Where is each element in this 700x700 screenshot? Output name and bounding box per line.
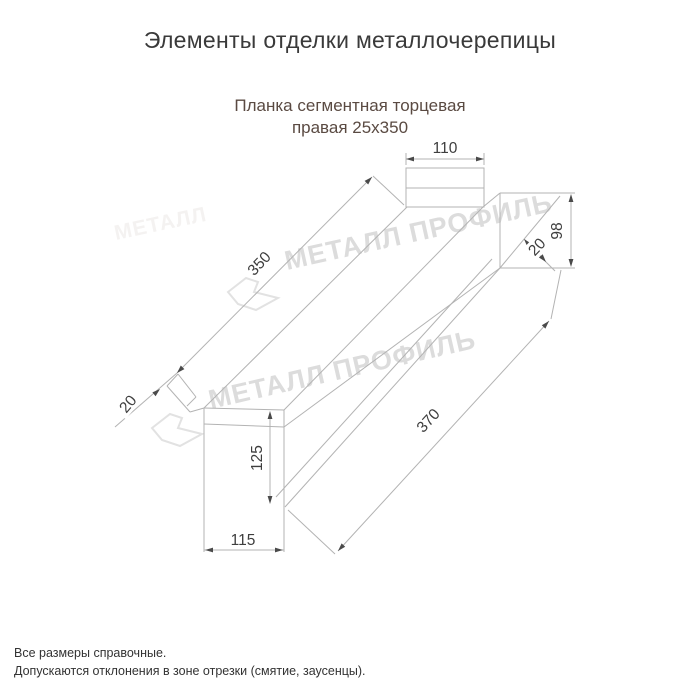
watermark-text: МЕТАЛЛ ПРОФИЛЬ	[282, 187, 555, 275]
metall-profil-logo-icon	[228, 278, 278, 310]
dim-110-group: 110	[406, 140, 484, 165]
dimension-label-350: 350	[245, 248, 275, 279]
technical-drawing: МЕТАЛЛ МЕТАЛЛ ПРОФИЛЬ МЕТАЛЛ ПРОФИЛЬ	[0, 0, 700, 700]
dim-370-group: 370	[288, 270, 561, 554]
watermark-upper: МЕТАЛЛ ПРОФИЛЬ	[228, 187, 555, 310]
page: Элементы отделки металлочерепицы Планка …	[0, 0, 700, 700]
dim-115-group: 115	[204, 532, 284, 552]
dimension-label-370: 370	[414, 405, 444, 436]
dim-125-group: 125	[249, 411, 272, 504]
dimension-label-125: 125	[249, 445, 266, 471]
dim-20-left-group: 20	[113, 373, 177, 427]
dimension-label-98: 98	[549, 222, 566, 239]
metall-profil-logo-icon	[152, 414, 202, 446]
footer-notes: Все размеры справочные. Допускаются откл…	[14, 644, 366, 680]
watermark-faint-text: МЕТАЛЛ	[112, 203, 209, 245]
footer-note-line1: Все размеры справочные.	[14, 644, 366, 662]
dimension-label-110: 110	[433, 140, 458, 157]
footer-note-line2: Допускаются отклонения в зоне отрезки (с…	[14, 662, 366, 680]
watermark-faint: МЕТАЛЛ	[112, 203, 209, 245]
dimension-label-115: 115	[231, 532, 256, 549]
